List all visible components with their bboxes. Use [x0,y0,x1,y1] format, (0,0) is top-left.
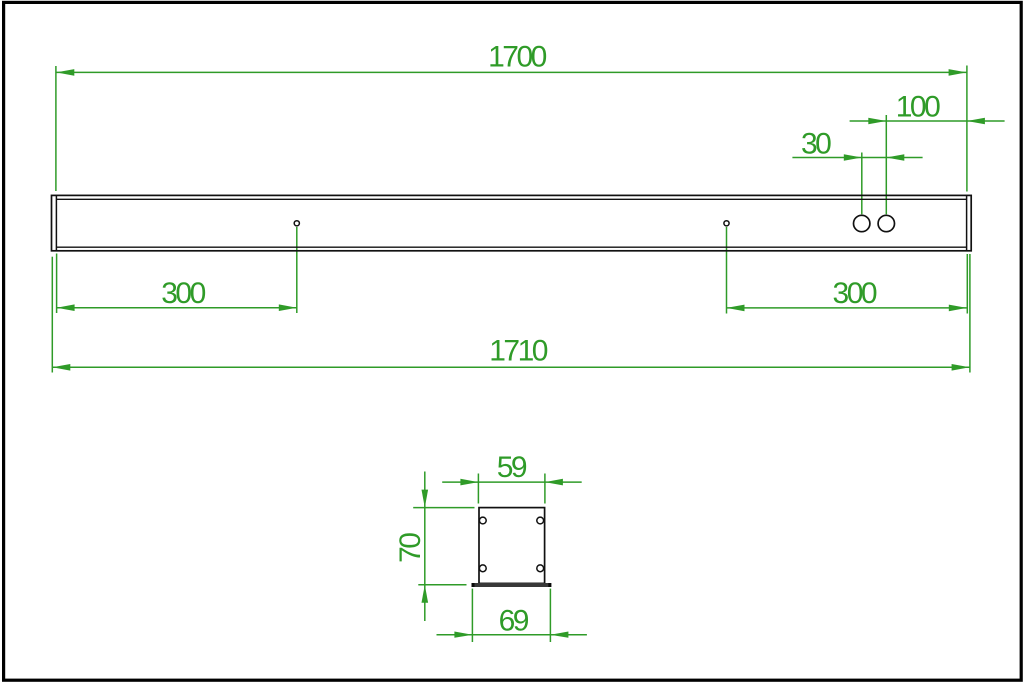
svg-text:30: 30 [801,128,831,161]
svg-text:100: 100 [896,91,940,124]
svg-text:300: 300 [833,277,877,310]
svg-text:70: 70 [394,533,427,563]
svg-text:69: 69 [499,605,529,638]
svg-text:300: 300 [161,277,205,310]
svg-text:1700: 1700 [488,41,547,74]
svg-text:1710: 1710 [489,335,548,368]
svg-text:59: 59 [497,451,527,484]
